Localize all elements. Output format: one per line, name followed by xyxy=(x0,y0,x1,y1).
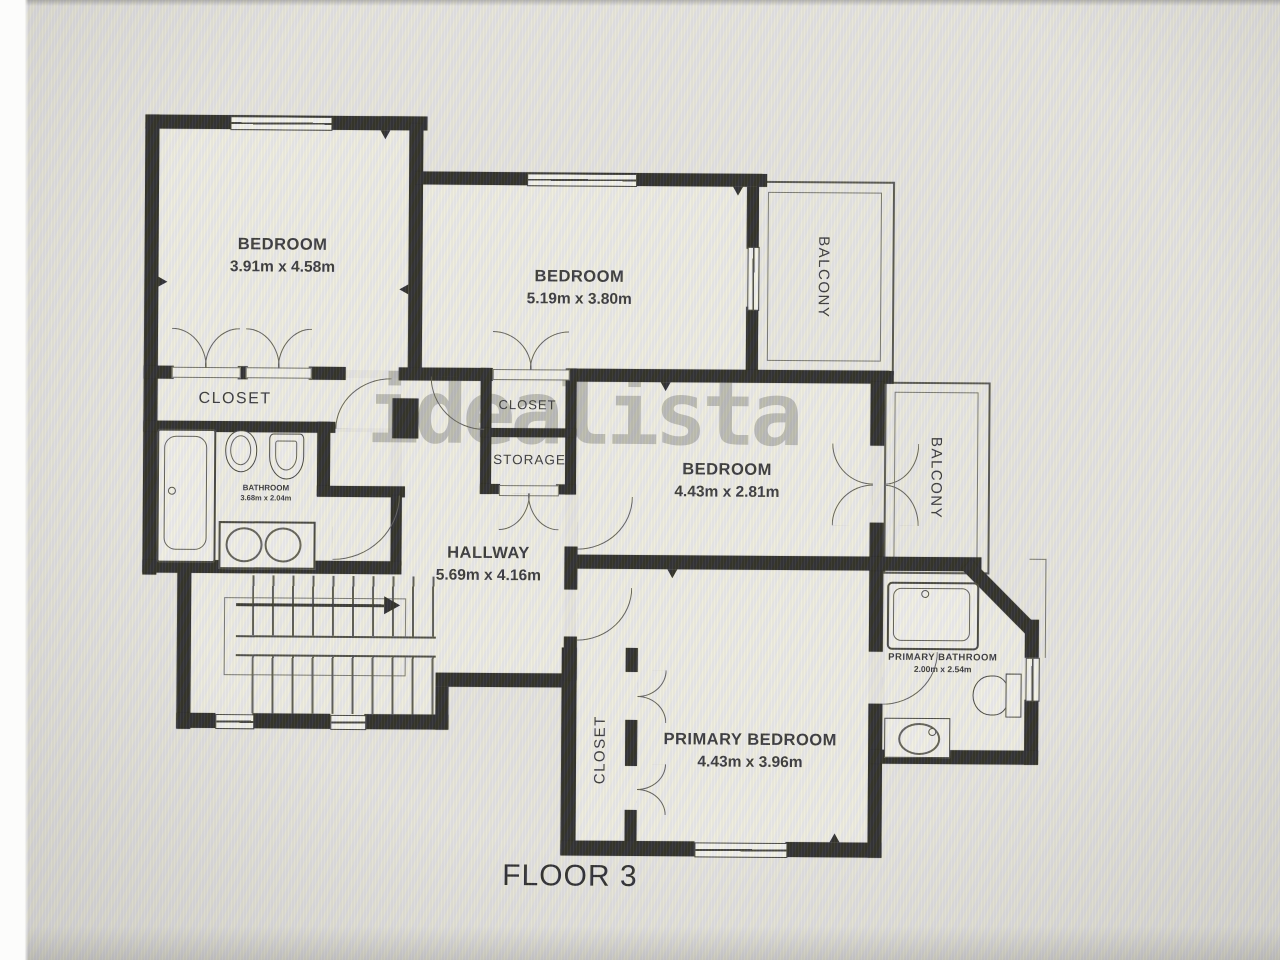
stairs-landing-rail xyxy=(236,635,436,657)
floorplan-photo: idealista xyxy=(0,0,1280,960)
toilet-primary-tank xyxy=(1005,674,1021,718)
dimension-tick xyxy=(733,187,743,196)
wall-pillar xyxy=(392,398,418,438)
wall xyxy=(480,484,500,494)
room-name: HALLWAY xyxy=(436,544,541,564)
wall xyxy=(870,382,884,446)
label-storage: STORAGE xyxy=(493,452,566,468)
dimension-tick xyxy=(380,130,390,139)
room-dims: 3.68m x 2.04m xyxy=(240,493,291,502)
label-hallway: HALLWAY 5.69m x 4.16m xyxy=(436,544,541,586)
label-bedroom2: BEDROOM 5.19m x 3.80m xyxy=(527,267,632,309)
dimension-tick xyxy=(661,382,671,391)
floor-title: FLOOR 3 xyxy=(502,859,638,894)
room-dims: 4.43m x 2.81m xyxy=(674,483,779,502)
floorplan: idealista xyxy=(0,0,1280,960)
wall xyxy=(435,687,448,730)
wall xyxy=(560,840,694,856)
wall xyxy=(869,557,884,652)
bidet-inner xyxy=(275,440,297,470)
dimension-tick xyxy=(829,833,839,842)
stairs-lower-flight xyxy=(251,654,435,714)
toilet-primary-bowl xyxy=(972,675,1008,715)
label-closet-center: CLOSET xyxy=(498,397,556,412)
window xyxy=(230,116,332,131)
wall xyxy=(626,648,638,672)
wall xyxy=(1025,620,1039,658)
window xyxy=(747,247,759,311)
door-sill xyxy=(246,367,312,378)
dimension-tick xyxy=(158,277,167,287)
room-dims: 4.43m x 3.96m xyxy=(663,753,837,772)
wall xyxy=(436,673,576,688)
room-name: BATHROOM xyxy=(240,483,291,492)
window xyxy=(330,715,366,730)
room-name: PRIMARY BATHROOM xyxy=(888,652,997,664)
toilet-inner xyxy=(230,435,251,465)
wall xyxy=(867,704,882,858)
sink-faucet xyxy=(928,728,936,736)
wall xyxy=(625,720,637,766)
dimension-tick xyxy=(667,569,677,578)
label-closet-primary: CLOSET xyxy=(591,715,608,784)
wall xyxy=(577,555,877,571)
room-name: PRIMARY BEDROOM xyxy=(663,730,837,750)
wall xyxy=(746,307,758,373)
label-balcony-right: BALCONY xyxy=(927,437,945,519)
room-dims: 5.69m x 4.16m xyxy=(436,567,541,586)
door-sill xyxy=(493,369,570,381)
room-dims: 5.19m x 3.80m xyxy=(527,290,632,309)
shower-faucet xyxy=(921,590,929,598)
bathtub-faucet xyxy=(168,487,176,495)
wall xyxy=(317,422,331,496)
wall xyxy=(176,713,215,728)
shower-tub-inner xyxy=(893,588,970,642)
room-dims: 2.00m x 2.54m xyxy=(888,664,997,675)
room-name: BEDROOM xyxy=(674,460,779,480)
label-bedroom1: BEDROOM 3.91m x 4.58m xyxy=(230,235,335,277)
wall xyxy=(564,546,577,589)
wall xyxy=(480,428,576,438)
room-dims: 3.91m x 4.58m xyxy=(230,258,335,277)
label-primary-bathroom: PRIMARY BATHROOM 2.00m x 2.54m xyxy=(888,652,997,675)
wall xyxy=(309,367,346,380)
wall xyxy=(176,560,191,729)
label-balcony-top: BALCONY xyxy=(815,236,833,318)
room-name: BEDROOM xyxy=(527,267,632,287)
window xyxy=(1025,658,1039,702)
wall xyxy=(747,187,759,249)
door-sill xyxy=(172,367,241,378)
stairs-direction-arrow xyxy=(384,596,400,614)
room-name: BEDROOM xyxy=(230,235,335,255)
vanity-sink-left xyxy=(225,527,262,562)
wall xyxy=(579,369,894,384)
label-primary-bedroom: PRIMARY BEDROOM 4.43m x 3.96m xyxy=(663,730,837,772)
wall xyxy=(564,636,577,680)
label-bedroom3: BEDROOM 4.43m x 2.81m xyxy=(674,460,779,502)
window xyxy=(694,842,787,858)
label-bathroom: BATHROOM 3.68m x 2.04m xyxy=(240,483,291,502)
window xyxy=(527,173,637,187)
label-closet-left: CLOSET xyxy=(198,390,271,409)
wall xyxy=(408,123,424,375)
window xyxy=(215,714,254,729)
vanity-sink-right xyxy=(264,527,301,562)
wall xyxy=(252,713,330,729)
dimension-tick xyxy=(399,284,408,294)
wall xyxy=(144,366,174,379)
